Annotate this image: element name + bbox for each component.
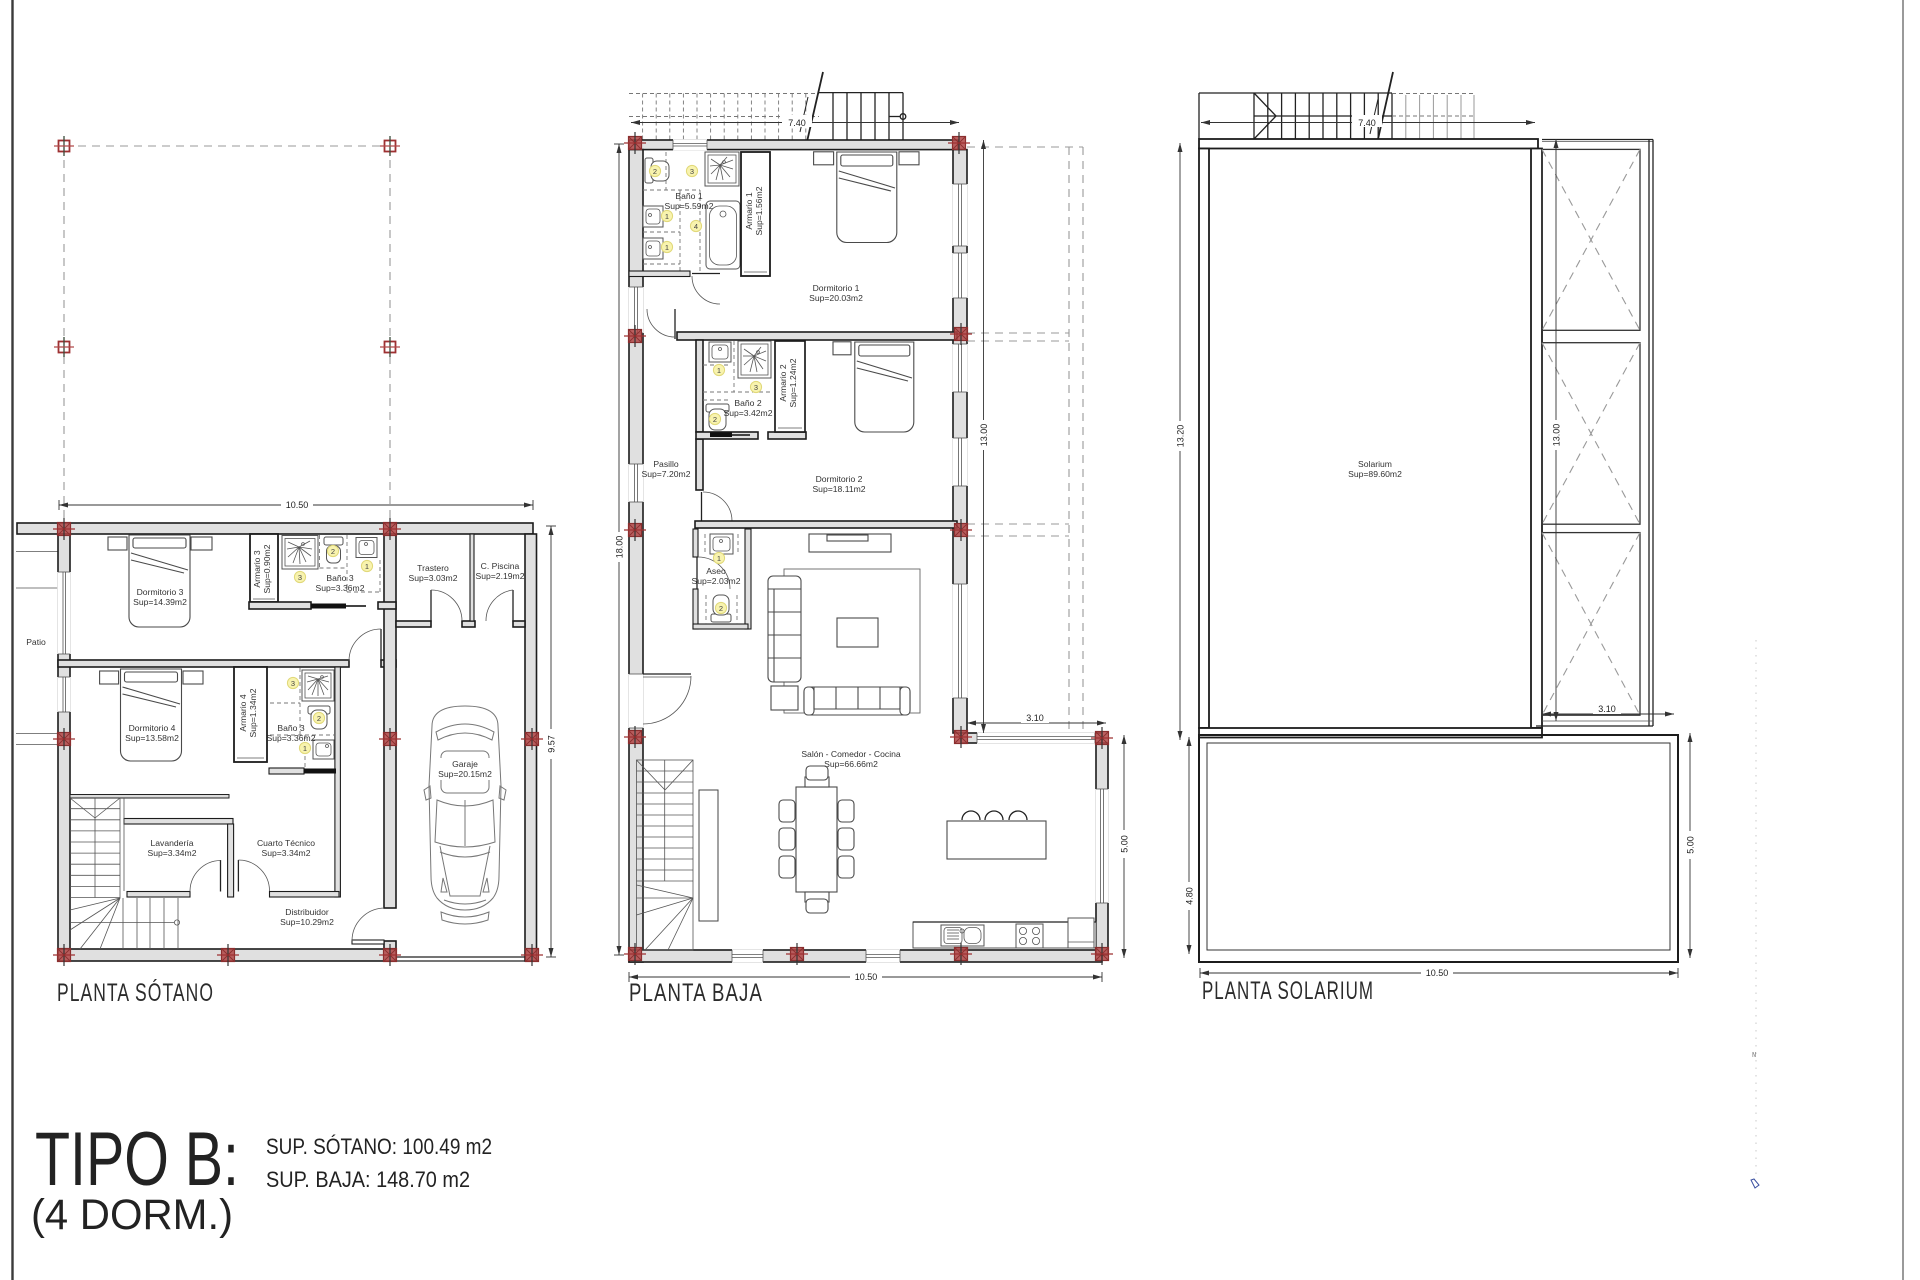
svg-text:Sup=3.34m2: Sup=3.34m2 — [148, 848, 197, 858]
svg-text:7.40: 7.40 — [1358, 118, 1376, 128]
svg-text:Armario 1: Armario 1 — [744, 192, 754, 229]
svg-text:Sup=20.15m2: Sup=20.15m2 — [438, 769, 492, 779]
svg-text:Cuarto Técnico: Cuarto Técnico — [257, 838, 315, 848]
svg-text:10.50: 10.50 — [855, 972, 878, 982]
svg-text:Trastero: Trastero — [417, 563, 449, 573]
svg-text:Distribuidor: Distribuidor — [285, 907, 329, 917]
svg-text:Sup=13.58m2: Sup=13.58m2 — [125, 733, 179, 743]
svg-text:Sup=3.03m2: Sup=3.03m2 — [409, 573, 458, 583]
svg-text:Sup=5.59m2: Sup=5.59m2 — [665, 201, 714, 211]
svg-text:1: 1 — [717, 554, 721, 563]
svg-text:4: 4 — [694, 222, 698, 231]
svg-text:1: 1 — [665, 243, 669, 252]
svg-text:1: 1 — [365, 562, 369, 571]
svg-text:Sup=20.03m2: Sup=20.03m2 — [809, 293, 863, 303]
svg-text:Pasillo: Pasillo — [653, 459, 679, 469]
svg-text:2: 2 — [719, 604, 723, 613]
svg-text:1: 1 — [717, 366, 721, 375]
svg-text:2: 2 — [713, 415, 717, 424]
svg-text:4.80: 4.80 — [1185, 887, 1195, 905]
svg-text:Sup=7.20m2: Sup=7.20m2 — [642, 469, 691, 479]
svg-text:Sup=18.11m2: Sup=18.11m2 — [812, 484, 865, 494]
svg-text:Salón - Comedor - Cocina: Salón - Comedor - Cocina — [801, 749, 901, 759]
svg-text:Solarium: Solarium — [1358, 459, 1392, 469]
svg-text:Sup=3.36m2: Sup=3.36m2 — [267, 733, 316, 743]
svg-text:Sup=10.29m2: Sup=10.29m2 — [280, 917, 334, 927]
svg-text:2: 2 — [331, 547, 335, 556]
svg-text:Baño 3: Baño 3 — [277, 723, 304, 733]
svg-text:Sup=14.39m2: Sup=14.39m2 — [133, 597, 187, 607]
svg-text:Sup=0.90m2: Sup=0.90m2 — [262, 544, 272, 593]
svg-text:3.10: 3.10 — [1026, 713, 1044, 723]
svg-text:PLANTA BAJA: PLANTA BAJA — [629, 979, 763, 1007]
svg-text:Aseo: Aseo — [706, 566, 726, 576]
svg-text:Dormitorio 1: Dormitorio 1 — [813, 283, 860, 293]
svg-text:3: 3 — [291, 679, 295, 688]
svg-text:PLANTA SOLARIUM: PLANTA SOLARIUM — [1202, 977, 1374, 1005]
svg-text:Sup=2.19m2: Sup=2.19m2 — [476, 571, 525, 581]
svg-text:5.00: 5.00 — [1686, 836, 1696, 854]
svg-text:5.00: 5.00 — [1120, 835, 1130, 853]
svg-text:10.50: 10.50 — [1426, 968, 1449, 978]
svg-text:Sup=1.34m2: Sup=1.34m2 — [248, 688, 258, 737]
svg-text:3.10: 3.10 — [1598, 704, 1616, 714]
svg-text:13.00: 13.00 — [979, 424, 989, 447]
svg-text:Sup=2.03m2: Sup=2.03m2 — [692, 576, 741, 586]
svg-text:9.57: 9.57 — [547, 735, 557, 753]
svg-text:1: 1 — [665, 212, 669, 221]
svg-text:3: 3 — [754, 383, 758, 392]
svg-text:Sup=3.34m2: Sup=3.34m2 — [262, 848, 311, 858]
svg-text:Armario 2: Armario 2 — [778, 364, 788, 401]
svg-text:1: 1 — [303, 744, 307, 753]
svg-text:13.00: 13.00 — [1552, 424, 1562, 447]
svg-text:Dormitorio 2: Dormitorio 2 — [816, 474, 863, 484]
svg-text:Baño 2: Baño 2 — [734, 398, 761, 408]
svg-text:Baño 1: Baño 1 — [675, 191, 702, 201]
svg-text:Armario 4: Armario 4 — [238, 694, 248, 731]
svg-text:SUP. BAJA: 148.70 m2: SUP. BAJA: 148.70 m2 — [266, 1167, 470, 1192]
svg-text:13.20: 13.20 — [1176, 425, 1186, 448]
svg-text:10.50: 10.50 — [286, 500, 309, 510]
svg-text:Baño 3: Baño 3 — [326, 573, 353, 583]
svg-text:Sup=66.66m2: Sup=66.66m2 — [824, 759, 878, 769]
svg-text:TIPO B:: TIPO B: — [35, 1117, 239, 1202]
svg-text:Dormitorio 3: Dormitorio 3 — [137, 587, 184, 597]
svg-text:Dormitorio 4: Dormitorio 4 — [129, 723, 176, 733]
svg-text:3: 3 — [298, 573, 302, 582]
svg-text:PLANTA SÓTANO: PLANTA SÓTANO — [57, 978, 214, 1007]
svg-text:Garaje: Garaje — [452, 759, 478, 769]
svg-text:Armario 3: Armario 3 — [252, 550, 262, 587]
svg-text:Sup=89.60m2: Sup=89.60m2 — [1348, 469, 1402, 479]
svg-text:N: N — [1752, 1052, 1756, 1060]
svg-text:Patio: Patio — [26, 637, 46, 647]
svg-text:Sup=1.24m2: Sup=1.24m2 — [788, 358, 798, 407]
svg-text:3: 3 — [690, 167, 694, 176]
svg-text:Lavandería: Lavandería — [150, 838, 193, 848]
svg-text:2: 2 — [317, 714, 321, 723]
svg-text:18.00: 18.00 — [615, 536, 625, 559]
svg-text:SUP. SÓTANO: 100.49 m2: SUP. SÓTANO: 100.49 m2 — [266, 1134, 492, 1159]
svg-text:Sup=3.36m2: Sup=3.36m2 — [316, 583, 365, 593]
svg-text:Sup=3.42m2: Sup=3.42m2 — [724, 408, 773, 418]
svg-text:C. Piscina: C. Piscina — [481, 561, 520, 571]
svg-text:Sup=1.56m2: Sup=1.56m2 — [754, 186, 764, 235]
svg-text:2: 2 — [653, 167, 657, 176]
svg-text:(4 DORM.): (4 DORM.) — [31, 1191, 233, 1239]
svg-text:7.40: 7.40 — [788, 118, 806, 128]
